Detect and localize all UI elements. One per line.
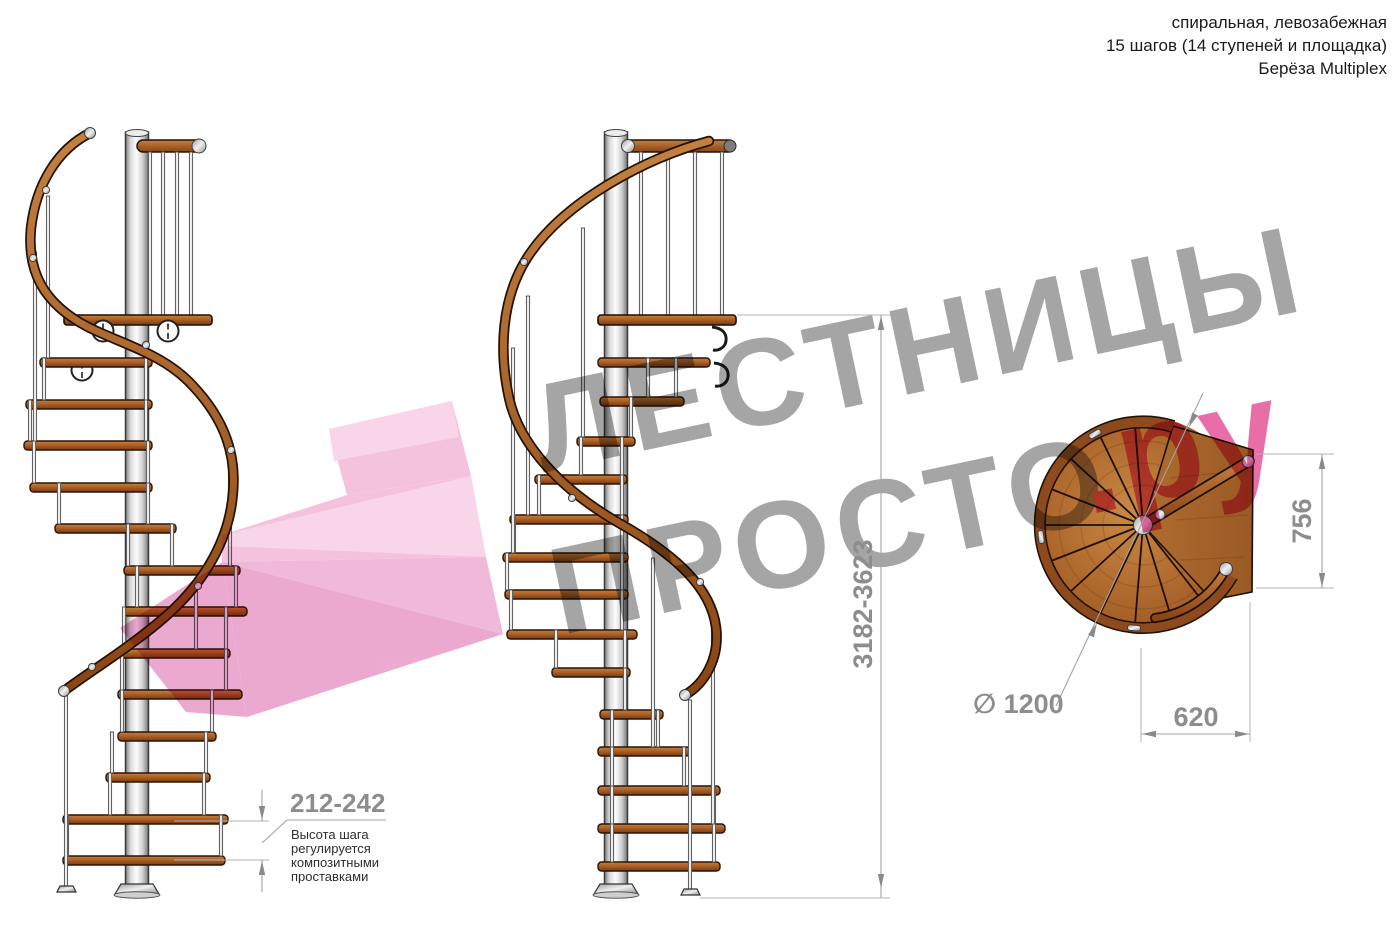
baluster [46,196,49,358]
tread [118,732,216,741]
baluster [505,553,508,590]
baluster [146,441,149,483]
baluster [189,152,192,315]
baluster [623,668,626,710]
plan-handrail-ball [1220,563,1233,576]
guard-rail-end-cap [724,140,736,152]
baluster [42,358,45,400]
tread [40,358,152,367]
arrow-down [878,874,884,888]
baluster [610,747,613,786]
baluster [639,152,642,315]
medallion-mark [167,333,169,339]
handrail-collar [520,258,527,265]
handrail-collar [88,663,95,670]
baluster [161,152,164,315]
handrail-end-post [64,692,67,886]
baluster [135,566,138,607]
header-line-type: спиральная, левозабежная [1172,13,1387,32]
handrail-collar [42,186,49,193]
baluster [666,152,669,315]
baluster [712,824,715,862]
baluster [202,773,205,815]
tread [30,483,152,492]
tread [598,824,725,833]
baluster [146,483,149,524]
watermark-logo-arrow [120,401,503,717]
arrow-up [1319,455,1325,469]
baluster [656,710,659,747]
handrail-cap [85,128,96,139]
baluster [108,773,111,815]
guard-rail-joint [622,140,635,153]
baluster [204,732,207,773]
tread [598,862,720,871]
leader-line [262,820,287,843]
drawing-header: спиральная, левозабежная 15 шагов (14 ст… [1106,13,1388,78]
baluster [144,358,147,400]
handrail-collar [227,446,234,453]
post-foot [681,889,700,895]
step-note-line: композитными [291,855,379,870]
handrail-collar [568,494,575,501]
baluster [57,483,60,524]
technical-drawing-page: ЛЕСТНИЦЫ ПРОСТО .ру 3182-3623 756 620 [0,0,1400,944]
guard-rail-end-cap [192,139,206,153]
arrow-right [1235,731,1249,737]
arrow-to-rim [1088,623,1097,637]
tread [598,786,720,795]
handrail-end-post [688,700,691,889]
baluster [720,152,723,315]
handrail-collar [29,254,36,261]
baluster [120,690,123,732]
arrow-down [1319,573,1325,587]
baluster [175,152,178,315]
baluster [110,732,113,773]
step-note-line: регулируется [291,841,371,856]
diameter-value: ∅ 1200 [973,689,1064,719]
medallion-mark [167,324,169,330]
header-line-steps: 15 шагов (14 ступеней и площадка) [1106,36,1387,55]
tread [55,524,176,533]
header-line-material: Берёза Multiplex [1258,59,1387,78]
landing-depth-value: 756 [1287,498,1317,543]
baluster [610,824,613,862]
baluster [28,400,31,441]
step-height-value: 212-242 [290,788,385,818]
rim-baluster [1127,625,1140,632]
baluster [693,152,696,315]
baluster [610,710,613,747]
tread [106,773,210,782]
handrail-cap [680,690,691,701]
baluster [554,630,557,668]
tread [63,815,228,824]
handrail-cap [59,686,70,697]
baluster [610,786,613,824]
tread [26,400,152,409]
baluster [537,475,540,515]
pole-top-cap [126,130,149,137]
baluster [511,348,514,553]
arrow-down [259,806,265,820]
tread [24,441,152,450]
baluster [32,441,35,483]
staircase-drawing-canvas: ЛЕСТНИЦЫ ПРОСТО .ру 3182-3623 756 620 [0,0,1400,944]
landing-width-value: 620 [1173,702,1218,732]
arrow-up [259,861,265,875]
base-plate [593,892,639,898]
pole-top-cap [605,130,628,137]
baluster [148,152,151,315]
baluster [144,400,147,441]
step-note-line: Высота шага [291,827,369,842]
step-note-line: проставками [291,869,368,884]
baluster [682,747,685,786]
post-foot [57,886,76,892]
base-plate [114,892,160,898]
baluster [509,590,512,630]
medallion-mark [81,372,83,378]
total-height-value: 3182-3623 [848,539,878,668]
left-staircase-side-view [24,128,247,899]
tread [552,668,630,677]
handrail-collar [142,341,149,348]
baluster [126,524,129,566]
arrow-left [1142,731,1156,737]
baluster [170,524,173,566]
